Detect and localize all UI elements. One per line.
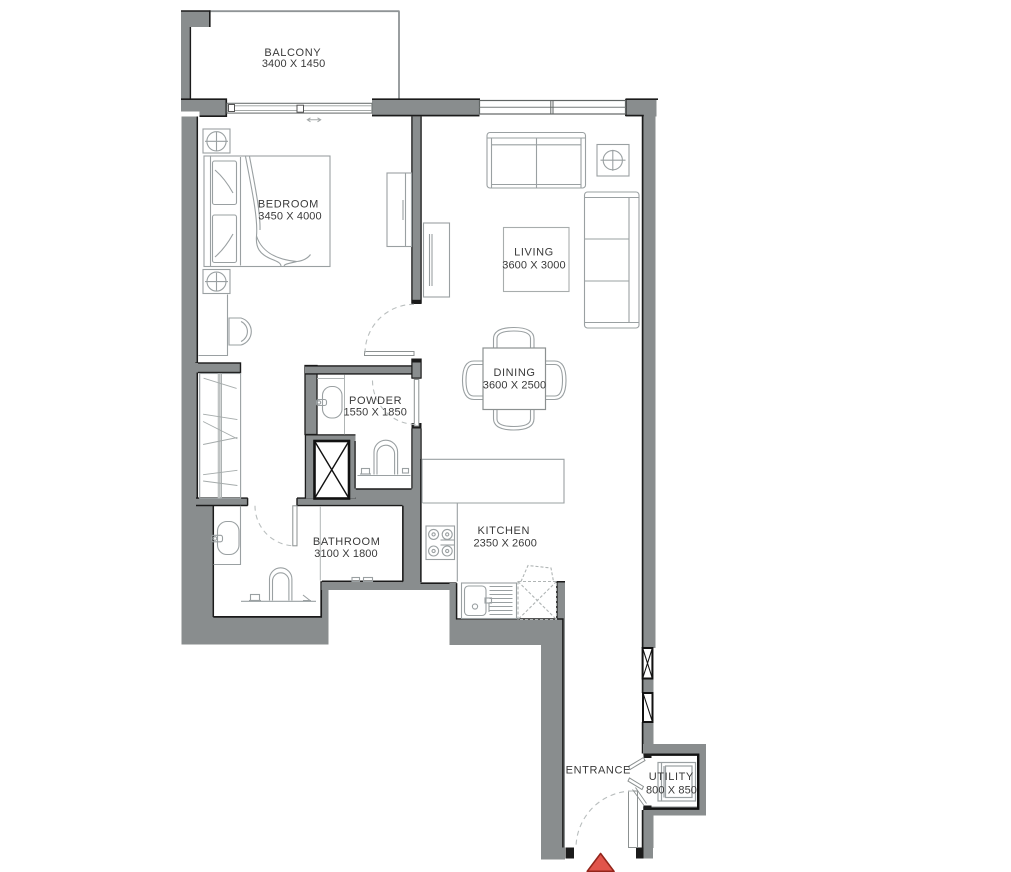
svg-text:KITCHEN: KITCHEN — [478, 525, 530, 537]
svg-text:3100 X 1800: 3100 X 1800 — [314, 548, 378, 560]
svg-text:BATHROOM: BATHROOM — [313, 536, 381, 548]
svg-text:LIVING: LIVING — [514, 247, 554, 259]
svg-text:800 X 850: 800 X 850 — [646, 785, 697, 797]
svg-text:3600 X 3000: 3600 X 3000 — [502, 260, 566, 272]
svg-text:POWDER: POWDER — [349, 395, 402, 407]
svg-text:3400 X 1450: 3400 X 1450 — [262, 58, 326, 70]
svg-text:2350 X 2600: 2350 X 2600 — [473, 537, 537, 549]
svg-text:UTILITY: UTILITY — [649, 771, 694, 783]
svg-text:1550 X 1850: 1550 X 1850 — [343, 407, 407, 419]
svg-text:DINING: DINING — [493, 367, 535, 379]
svg-text:ENTRANCE: ENTRANCE — [566, 765, 631, 777]
svg-text:3600 X 2500: 3600 X 2500 — [483, 380, 547, 392]
svg-text:BEDROOM: BEDROOM — [258, 199, 319, 211]
svg-text:3450 X 4000: 3450 X 4000 — [258, 211, 322, 223]
